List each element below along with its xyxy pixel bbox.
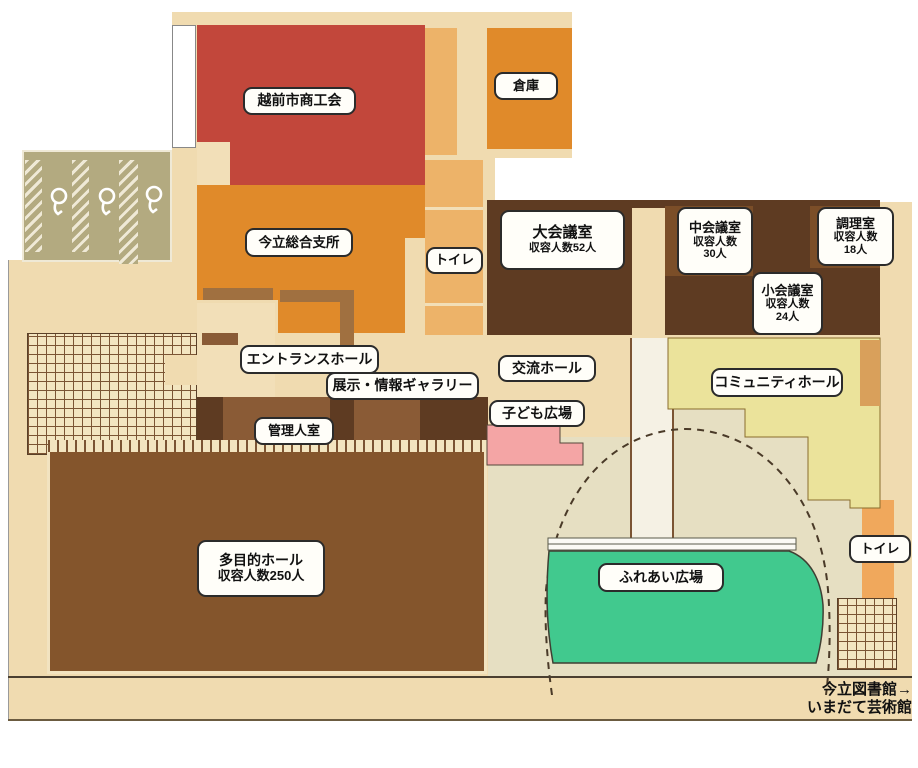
restroom-divider-line — [425, 207, 483, 210]
label-fureai-plaza: ふれあい広場 — [598, 563, 724, 592]
label-text: 小会議室 — [761, 284, 813, 299]
label-capacity: 収容人数 — [693, 236, 737, 248]
plaza-overlay — [480, 330, 918, 695]
label-capacity-value: 30人 — [703, 248, 726, 260]
label-toilet-central: トイレ — [426, 247, 483, 274]
wall-segment — [203, 288, 273, 300]
community-hall-column — [860, 340, 880, 406]
exterior-notch — [495, 158, 918, 202]
label-text: 展示・情報ギャラリー — [333, 378, 473, 394]
label-text: 管理人室 — [268, 424, 320, 439]
community-hall-shape — [668, 338, 880, 508]
toilet-fixture-icon — [46, 186, 70, 218]
wall-segment — [340, 290, 354, 345]
label-kids-plaza: 子ども広場 — [489, 400, 585, 427]
label-community-hall: コミュニティホール — [711, 368, 843, 397]
label-capacity: 収容人数 — [834, 231, 878, 243]
stall-divider — [25, 160, 42, 252]
room-caretaker-dark — [197, 397, 223, 440]
label-capacity-value: 24人 — [776, 311, 799, 323]
label-text: 交流ホール — [512, 361, 582, 377]
label-text: トイレ — [435, 253, 474, 268]
label-text: 倉庫 — [513, 79, 539, 94]
label-storage: 倉庫 — [494, 72, 558, 100]
label-branch-office: 今立総合支所 — [245, 228, 353, 257]
room-caretaker-dark — [420, 397, 488, 440]
label-medium-meeting-room: 中会議室 収容人数 30人 — [677, 207, 753, 275]
label-caretaker-room: 管理人室 — [254, 417, 334, 445]
label-capacity: 収容人数 — [766, 298, 810, 310]
label-text: トイレ — [860, 542, 899, 557]
label-exchange-hall: 交流ホール — [498, 355, 596, 382]
caption-line-art-museum: いまだて芸術館 — [740, 699, 912, 717]
corridor-strip-north — [425, 28, 457, 155]
label-capacity-value: 18人 — [844, 244, 867, 256]
label-text: 調理室 — [836, 217, 875, 232]
label-text: 子ども広場 — [502, 406, 572, 422]
label-text: エントランスホール — [247, 352, 373, 368]
label-large-meeting-room: 大会議室 収容人数52人 — [500, 210, 625, 270]
label-text: ふれあい広場 — [619, 570, 703, 586]
paving-grid-entrance — [27, 333, 197, 455]
exterior-gap-strip — [172, 25, 196, 148]
kids-plaza-shape — [487, 425, 583, 465]
label-multipurpose-hall: 多目的ホール 収容人数250人 — [197, 540, 325, 597]
floorplan-canvas: 越前市商工会 倉庫 今立総合支所 トイレ 大会議室 収容人数52人 中会議室 収… — [0, 0, 918, 768]
site-boundary-line — [8, 676, 912, 678]
caption-line-library: 今立図書館→ — [740, 681, 912, 699]
label-text: コミュニティホール — [714, 375, 839, 391]
label-cooking-room: 調理室 収容人数 18人 — [817, 207, 894, 266]
label-entrance-hall: エントランスホール — [240, 345, 379, 374]
label-capacity: 収容人数52人 — [529, 242, 596, 254]
wall-segment — [202, 333, 238, 345]
label-text: 多目的ホール — [219, 553, 303, 569]
stall-divider — [72, 160, 89, 252]
paving-notch — [165, 355, 197, 385]
room-notch — [197, 142, 230, 185]
toilet-fixture-icon — [94, 186, 118, 218]
site-boundary-line-south — [8, 719, 912, 721]
label-exhibition-gallery: 展示・情報ギャラリー — [326, 372, 479, 400]
label-text: 大会議室 — [532, 225, 592, 242]
label-text: 中会議室 — [689, 221, 741, 236]
wall-segment — [280, 290, 342, 302]
label-text: 越前市商工会 — [258, 93, 342, 109]
label-chamber-of-commerce: 越前市商工会 — [243, 87, 356, 115]
label-capacity: 収容人数250人 — [218, 569, 305, 584]
restroom-divider-line — [425, 303, 483, 306]
adjacent-facility-caption: 今立図書館→ いまだて芸術館 — [740, 681, 912, 717]
label-text: 今立総合支所 — [259, 235, 340, 250]
label-toilet-east: トイレ — [849, 535, 911, 563]
label-small-meeting-room: 小会議室 収容人数 24人 — [752, 272, 823, 335]
stall-divider — [119, 160, 138, 264]
toilet-fixture-icon — [141, 184, 165, 216]
